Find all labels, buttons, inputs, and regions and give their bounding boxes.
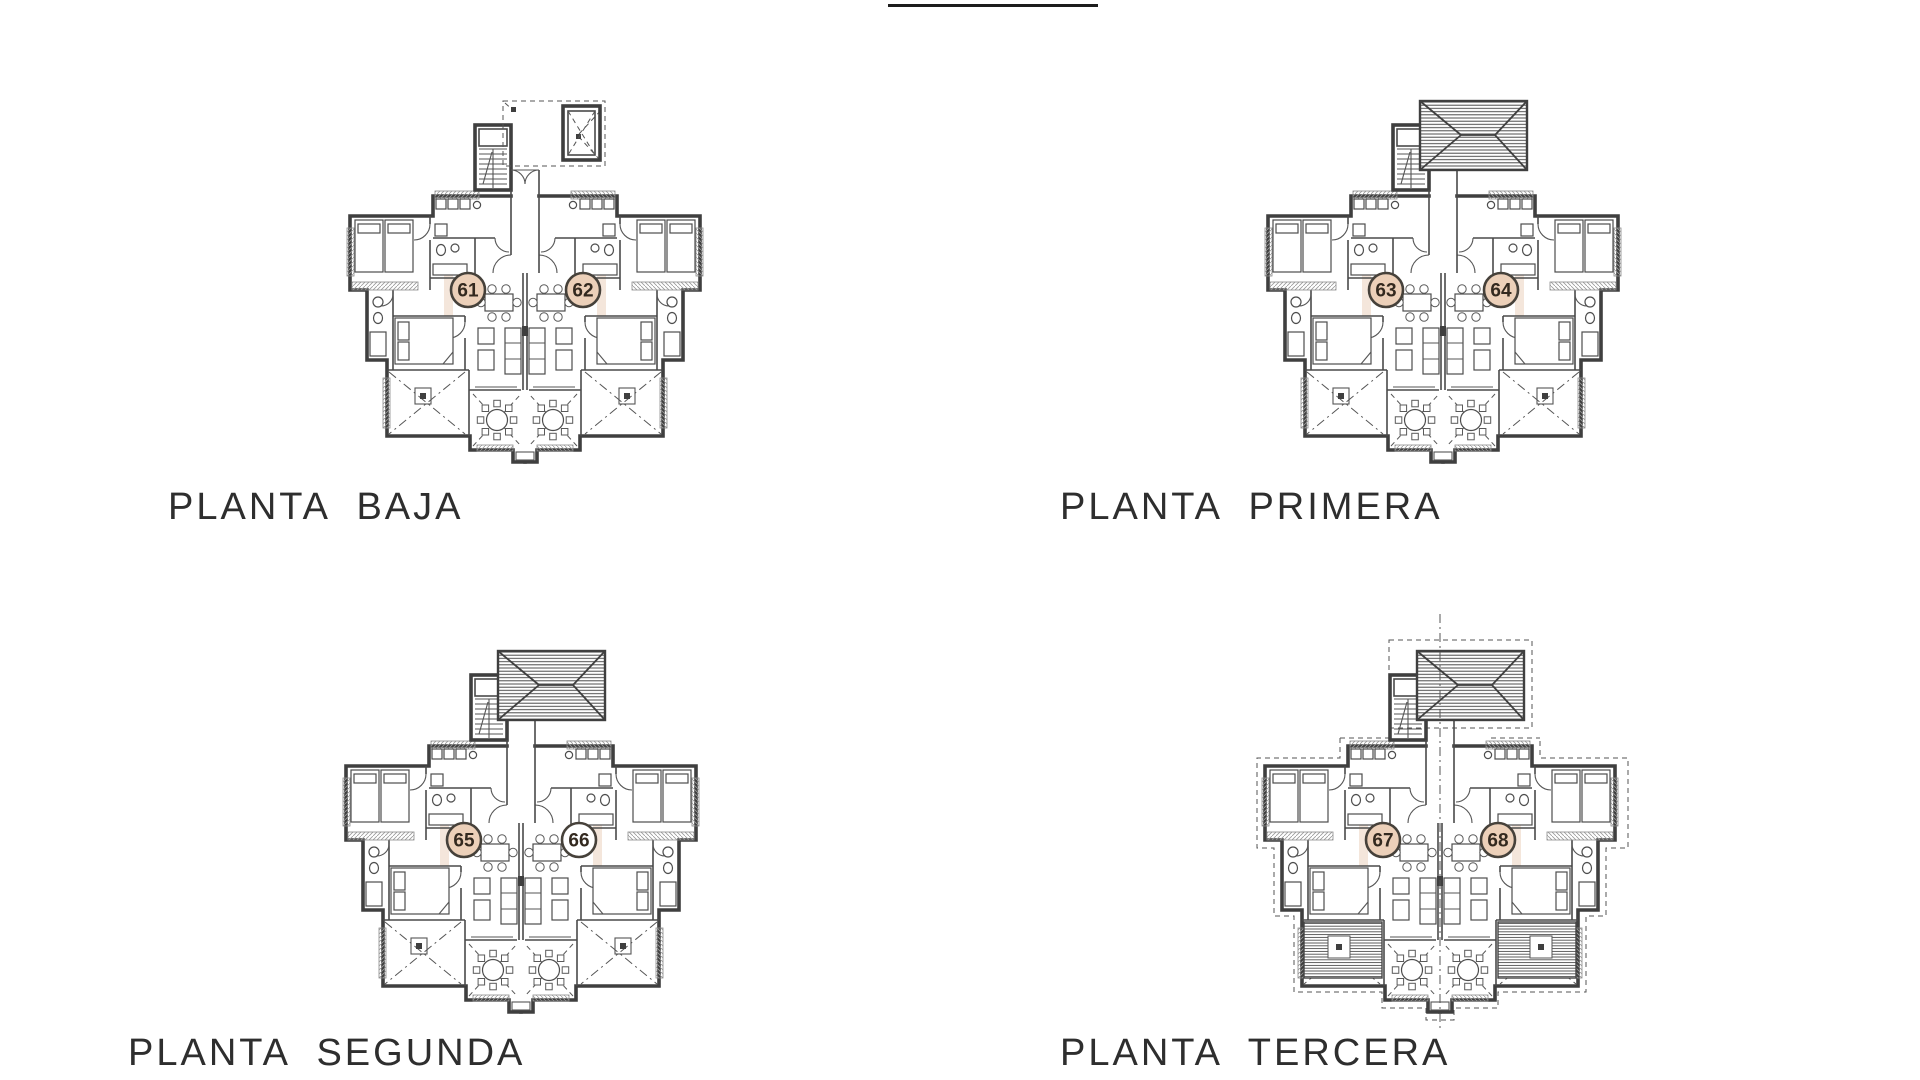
- unit-badge: 62: [566, 273, 600, 307]
- drawing-sheet: 61 62 63 64: [0, 0, 1920, 1080]
- unit-badge: 66: [562, 823, 596, 857]
- title-rule: [888, 4, 1098, 7]
- svg-text:67: 67: [1372, 831, 1393, 852]
- floor-label-planta-primera: PLANTA PRIMERA: [1060, 486, 1443, 529]
- floor-label-planta-tercera: PLANTA TERCERA: [1060, 1032, 1450, 1075]
- unit-badge: 61: [451, 273, 485, 307]
- floor-label-planta-baja: PLANTA BAJA: [168, 486, 464, 529]
- svg-text:68: 68: [1487, 831, 1508, 852]
- unit-badge: 63: [1369, 273, 1403, 307]
- svg-text:64: 64: [1490, 281, 1512, 302]
- svg-text:66: 66: [568, 831, 589, 852]
- unit-badge: 67: [1366, 823, 1400, 857]
- floor-plan-planta-tercera: 67 68: [1257, 614, 1628, 1030]
- unit-badge: 65: [447, 823, 481, 857]
- svg-text:62: 62: [572, 281, 593, 302]
- svg-text:61: 61: [457, 281, 479, 302]
- floor-plan-planta-primera: 63 64: [1265, 101, 1621, 462]
- unit-badge: 68: [1481, 823, 1515, 857]
- floor-plan-planta-baja: 61 62: [347, 101, 703, 462]
- floor-plan-planta-segunda: 65 66: [343, 651, 699, 1012]
- svg-text:65: 65: [453, 831, 475, 852]
- svg-text:63: 63: [1375, 281, 1396, 302]
- floor-label-planta-segunda: PLANTA SEGUNDA: [128, 1032, 525, 1075]
- floor-plans-canvas: 61 62 63 64: [0, 0, 1920, 1080]
- unit-badge: 64: [1484, 273, 1518, 307]
